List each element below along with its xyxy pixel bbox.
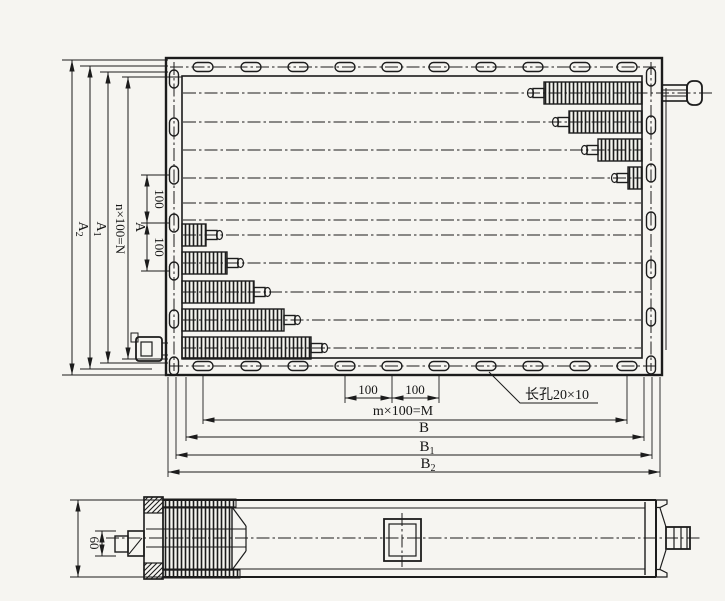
label-n100: n×100=N [113,204,128,255]
label-100-right: 100 [405,382,425,397]
finned-tube-element-left [182,224,206,246]
label-a1: A1 [91,221,108,236]
finned-tube-element-left [182,281,254,303]
label-60: 60 [87,537,102,550]
fitting-body [136,337,162,361]
finned-tube-element-left [182,309,284,331]
label-b: B [419,420,429,436]
finned-tube-element-right [628,167,642,189]
flange-hatch-bottom [144,563,163,579]
fin-stack-section [163,507,232,570]
fitting-hole [141,342,152,356]
label-pitch-upper: 100 [152,189,167,209]
label-slot-note: 长孔20×10 [525,387,589,403]
fin-crest-bottom [163,570,240,578]
finned-tube-element-left [182,252,227,274]
label-m100: m×100=M [373,404,434,419]
engineering-drawing-page: A2 A1 n×100=N A 100 100 100 100 m×100=M … [0,0,725,601]
side-view [70,497,702,579]
fin-crest-top [163,499,236,507]
flange-hatch-top [144,497,163,513]
finned-tube-element-right [569,111,642,133]
label-pitch-lower: 100 [152,237,167,257]
label-a2: A2 [73,221,90,236]
fitting-bottom-left [131,333,168,361]
label-100-left: 100 [358,382,378,397]
label-a: A [132,222,147,233]
finned-tube-element-right [544,82,642,104]
heater-frame-drawing: A2 A1 n×100=N A 100 100 100 100 m×100=M … [0,0,725,601]
label-b1: B1 [419,439,434,457]
finned-tube-element-left [182,337,311,359]
label-b2: B2 [420,456,435,474]
finned-tube-element-right [598,139,642,161]
